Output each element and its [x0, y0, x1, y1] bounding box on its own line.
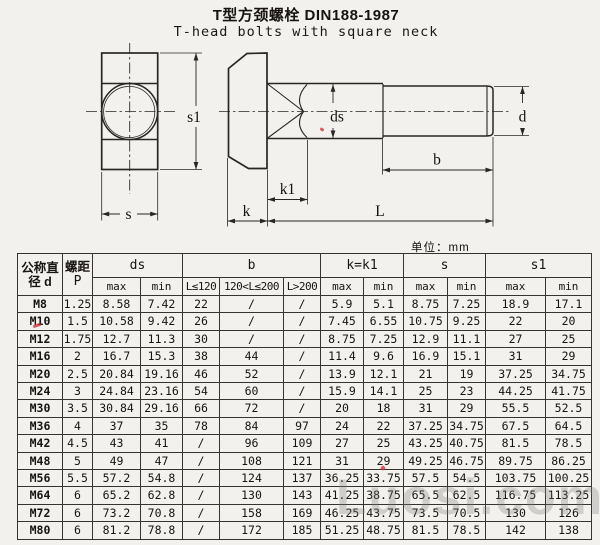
value-cell: 43 [93, 435, 141, 452]
value-cell: 6.55 [364, 313, 404, 330]
value-cell: 81.2 [93, 522, 141, 539]
value-cell: 12.1 [364, 365, 404, 382]
value-cell: 3.5 [63, 400, 93, 417]
value-cell: 15.3 [141, 348, 183, 365]
value-cell: 20 [546, 313, 592, 330]
size-cell: M64 [18, 487, 63, 504]
table-row: M81.258.587.4222//5.95.18.757.2518.917.1 [18, 296, 592, 313]
value-cell: 12.9 [404, 330, 448, 347]
header-b-range1: L≤120 [183, 278, 220, 296]
header-ds-max: max [93, 278, 141, 296]
value-cell: 19 [448, 365, 486, 382]
value-cell: 19.16 [141, 365, 183, 382]
table-row: M16216.715.33844/11.49.616.915.13129 [18, 348, 592, 365]
header-ds-min: min [141, 278, 183, 296]
value-cell: 38 [183, 348, 220, 365]
value-cell: / [220, 296, 284, 313]
value-cell: 12.7 [93, 330, 141, 347]
value-cell: 130 [486, 504, 546, 521]
value-cell: 9.6 [364, 348, 404, 365]
value-cell: 158 [220, 504, 284, 521]
value-cell: 54.5 [448, 470, 486, 487]
value-cell: 6 [63, 487, 93, 504]
dim-label-s1: s1 [187, 109, 201, 126]
value-cell: 10.58 [93, 313, 141, 330]
value-cell: 143 [284, 487, 321, 504]
thread-end-cap [487, 86, 493, 136]
value-cell: 46 [183, 365, 220, 382]
value-cell: 11.1 [448, 330, 486, 347]
value-cell: 15.1 [448, 348, 486, 365]
square-neck-diagonal-1 [267, 84, 304, 112]
value-cell: 7.45 [321, 313, 364, 330]
value-cell: 47 [141, 452, 183, 469]
value-cell: 18.9 [486, 296, 546, 313]
value-cell: 31 [321, 452, 364, 469]
value-cell: 18 [364, 400, 404, 417]
value-cell: 2 [63, 348, 93, 365]
header-diameter: 公称直 径 d [18, 254, 63, 296]
value-cell: 9.42 [141, 313, 183, 330]
dim-label-s: s [125, 206, 131, 223]
value-cell: 23 [448, 383, 486, 400]
header-b-range2: 120<L≤200 [220, 278, 284, 296]
header-s1: s1 [486, 254, 592, 278]
value-cell: / [220, 330, 284, 347]
size-cell: M48 [18, 452, 63, 469]
value-cell: 35 [141, 417, 183, 434]
value-cell: 97 [284, 417, 321, 434]
table-row: M72673.270.8/15816946.2543.7573.570.5130… [18, 504, 592, 521]
value-cell: 65.2 [93, 487, 141, 504]
value-cell: 96 [220, 435, 284, 452]
header-b: b [183, 254, 321, 278]
value-cell: 138 [546, 522, 592, 539]
value-cell: 43.75 [364, 504, 404, 521]
value-cell: / [284, 400, 321, 417]
table-row: M24324.8423.165460/15.914.1252344.2541.7… [18, 383, 592, 400]
header-k: k=k1 [321, 254, 404, 278]
value-cell: 73.2 [93, 504, 141, 521]
header-diameter-line2: 径 d [18, 275, 62, 289]
value-cell: 67.5 [486, 417, 546, 434]
value-cell: 13.9 [321, 365, 364, 382]
value-cell: 31 [486, 348, 546, 365]
value-cell: 116.75 [486, 487, 546, 504]
value-cell: 24 [321, 417, 364, 434]
size-cell: M10 [18, 313, 63, 330]
size-cell: M42 [18, 435, 63, 452]
dim-label-L: L [375, 203, 384, 220]
value-cell: 22 [486, 313, 546, 330]
size-cell: M72 [18, 504, 63, 521]
value-cell: 34.75 [448, 417, 486, 434]
value-cell: 1.75 [63, 330, 93, 347]
value-cell: / [220, 313, 284, 330]
value-cell: 41.75 [546, 383, 592, 400]
value-cell: / [284, 313, 321, 330]
value-cell: 8.75 [321, 330, 364, 347]
value-cell: 7.25 [448, 296, 486, 313]
value-cell: 1.25 [63, 296, 93, 313]
table-body: M81.258.587.4222//5.95.18.757.2518.917.1… [18, 296, 592, 540]
value-cell: 1.5 [63, 313, 93, 330]
value-cell: 66 [183, 400, 220, 417]
square-neck-diagonal-2 [267, 112, 304, 139]
value-cell: 5.1 [364, 296, 404, 313]
value-cell: / [284, 296, 321, 313]
value-cell: 41 [141, 435, 183, 452]
value-cell: 23.16 [141, 383, 183, 400]
value-cell: 65.5 [404, 487, 448, 504]
value-cell: 26 [183, 313, 220, 330]
value-cell: / [183, 504, 220, 521]
value-cell: 36.25 [321, 470, 364, 487]
size-cell: M56 [18, 470, 63, 487]
value-cell: 2.5 [63, 365, 93, 382]
value-cell: / [284, 383, 321, 400]
size-cell: M30 [18, 400, 63, 417]
value-cell: 78.5 [448, 522, 486, 539]
header-s1-max: max [486, 278, 546, 296]
value-cell: 29 [448, 400, 486, 417]
value-cell: 22 [364, 417, 404, 434]
table-row: M424.54341/96109272543.2540.7581.578.5 [18, 435, 592, 452]
bolt-technical-drawing: s1 s ds d b k1 k L [0, 40, 600, 255]
value-cell: 6 [63, 504, 93, 521]
value-cell: 8.75 [404, 296, 448, 313]
table-row: M121.7512.711.330//8.757.2512.911.12725 [18, 330, 592, 347]
value-cell: 51.25 [321, 522, 364, 539]
front-view [86, 43, 175, 194]
value-cell: / [183, 452, 220, 469]
value-cell: / [183, 435, 220, 452]
value-cell: 16.9 [404, 348, 448, 365]
value-cell: 30 [183, 330, 220, 347]
table-row: M101.510.589.4226//7.456.5510.759.252220 [18, 313, 592, 330]
value-cell: 17.1 [546, 296, 592, 313]
value-cell: 3 [63, 383, 93, 400]
value-cell: 40.75 [448, 435, 486, 452]
value-cell: 100.25 [546, 470, 592, 487]
size-cell: M24 [18, 383, 63, 400]
value-cell: 29 [546, 348, 592, 365]
dimension-table: 公称直 径 d 螺距 P ds b k=k1 s s1 max min L≤12… [17, 253, 592, 540]
value-cell: 113.25 [546, 487, 592, 504]
value-cell: 60 [220, 383, 284, 400]
value-cell: 57.2 [93, 470, 141, 487]
value-cell: 62.8 [141, 487, 183, 504]
page-subtitle: T-head bolts with square neck [0, 24, 600, 40]
size-cell: M12 [18, 330, 63, 347]
value-cell: 34.75 [546, 365, 592, 382]
value-cell: / [284, 348, 321, 365]
dim-label-ds: ds [330, 109, 344, 126]
value-cell: 6 [63, 522, 93, 539]
value-cell: 14.1 [364, 383, 404, 400]
value-cell: 44.25 [486, 383, 546, 400]
value-cell: 70.5 [448, 504, 486, 521]
value-cell: 142 [486, 522, 546, 539]
value-cell: 49 [93, 452, 141, 469]
value-cell: 121 [284, 452, 321, 469]
header-s-min: min [448, 278, 486, 296]
value-cell: 169 [284, 504, 321, 521]
value-cell: 137 [284, 470, 321, 487]
header-s-max: max [404, 278, 448, 296]
dimensions [102, 53, 529, 227]
value-cell: 5.5 [63, 470, 93, 487]
value-cell: 5.9 [321, 296, 364, 313]
header-pitch: 螺距 P [63, 254, 93, 296]
table-row: M80681.278.8/17218551.2548.7581.578.5142… [18, 522, 592, 539]
value-cell: 126 [546, 504, 592, 521]
dim-label-d: d [519, 109, 527, 126]
value-cell: 8.58 [93, 296, 141, 313]
value-cell: 4.5 [63, 435, 93, 452]
value-cell: 46.25 [321, 504, 364, 521]
size-cell: M20 [18, 365, 63, 382]
table-row: M565.557.254.8/12413736.2533.7557.554.51… [18, 470, 592, 487]
value-cell: 9.25 [448, 313, 486, 330]
value-cell: 10.75 [404, 313, 448, 330]
value-cell: 25 [404, 383, 448, 400]
value-cell: 81.5 [404, 522, 448, 539]
value-cell: 37.25 [486, 365, 546, 382]
table-row: M3643735788497242237.2534.7567.564.5 [18, 417, 592, 434]
table-row: M303.530.8429.166672/2018312955.552.5 [18, 400, 592, 417]
value-cell: 108 [220, 452, 284, 469]
value-cell: 124 [220, 470, 284, 487]
value-cell: 22 [183, 296, 220, 313]
dim-label-b: b [433, 152, 441, 169]
value-cell: 25 [364, 435, 404, 452]
head-side-outline [229, 53, 268, 169]
value-cell: 5 [63, 452, 93, 469]
value-cell: 64.5 [546, 417, 592, 434]
side-view [219, 53, 509, 169]
value-cell: 78.5 [546, 435, 592, 452]
value-cell: 54.8 [141, 470, 183, 487]
value-cell: 57.5 [404, 470, 448, 487]
value-cell: 11.3 [141, 330, 183, 347]
value-cell: 43.25 [404, 435, 448, 452]
value-cell: 7.25 [364, 330, 404, 347]
value-cell: / [183, 470, 220, 487]
value-cell: 52 [220, 365, 284, 382]
dim-label-k1: k1 [280, 181, 296, 198]
header-s: s [404, 254, 486, 278]
value-cell: / [284, 365, 321, 382]
value-cell: 20 [321, 400, 364, 417]
value-cell: 30.84 [93, 400, 141, 417]
value-cell: 31 [404, 400, 448, 417]
header-pitch-line2: P [63, 274, 92, 289]
table-row: M202.520.8419.164652/13.912.1211937.2534… [18, 365, 592, 382]
value-cell: 41.25 [321, 487, 364, 504]
size-cell: M80 [18, 522, 63, 539]
value-cell: / [284, 330, 321, 347]
value-cell: 27 [486, 330, 546, 347]
value-cell: 27 [321, 435, 364, 452]
size-cell: M36 [18, 417, 63, 434]
value-cell: 62.5 [448, 487, 486, 504]
header-ds: ds [93, 254, 183, 278]
dim-label-k: k [243, 203, 251, 220]
value-cell: 33.75 [364, 470, 404, 487]
value-cell: 46.75 [448, 452, 486, 469]
value-cell: 81.5 [486, 435, 546, 452]
value-cell: / [183, 487, 220, 504]
header-pitch-line1: 螺距 [63, 260, 92, 274]
value-cell: 38.75 [364, 487, 404, 504]
value-cell: 130 [220, 487, 284, 504]
value-cell: 25 [546, 330, 592, 347]
value-cell: 84 [220, 417, 284, 434]
table-row: M64665.262.8/13014341.2538.7565.562.5116… [18, 487, 592, 504]
size-cell: M16 [18, 348, 63, 365]
value-cell: 37 [93, 417, 141, 434]
value-cell: 55.5 [486, 400, 546, 417]
value-cell: 11.4 [321, 348, 364, 365]
value-cell: 54 [183, 383, 220, 400]
value-cell: 185 [284, 522, 321, 539]
value-cell: 72 [220, 400, 284, 417]
value-cell: 103.75 [486, 470, 546, 487]
page-title: T型方颈螺栓 DIN188-1987 [0, 4, 600, 25]
value-cell: 86.25 [546, 452, 592, 469]
value-cell: 48.75 [364, 522, 404, 539]
value-cell: 24.84 [93, 383, 141, 400]
header-k-min: min [364, 278, 404, 296]
value-cell: 20.84 [93, 365, 141, 382]
value-cell: 172 [220, 522, 284, 539]
shank-circle-inner [104, 86, 155, 137]
value-cell: / [183, 522, 220, 539]
value-cell: 16.7 [93, 348, 141, 365]
value-cell: 4 [63, 417, 93, 434]
value-cell: 44 [220, 348, 284, 365]
value-cell: 78.8 [141, 522, 183, 539]
header-k-max: max [321, 278, 364, 296]
value-cell: 7.42 [141, 296, 183, 313]
value-cell: 37.25 [404, 417, 448, 434]
header-b-range3: L>200 [284, 278, 321, 296]
header-diameter-line1: 公称直 [18, 261, 62, 275]
value-cell: 15.9 [321, 383, 364, 400]
value-cell: 89.75 [486, 452, 546, 469]
value-cell: 73.5 [404, 504, 448, 521]
value-cell: 78 [183, 417, 220, 434]
value-cell: 70.8 [141, 504, 183, 521]
header-s1-min: min [546, 278, 592, 296]
value-cell: 52.5 [546, 400, 592, 417]
size-cell: M8 [18, 296, 63, 313]
value-cell: 49.25 [404, 452, 448, 469]
value-cell: 29.16 [141, 400, 183, 417]
square-neck-arc [299, 85, 307, 138]
value-cell: 109 [284, 435, 321, 452]
table-row: M4854947/108121312949.2546.7589.7586.25 [18, 452, 592, 469]
value-cell: 21 [404, 365, 448, 382]
